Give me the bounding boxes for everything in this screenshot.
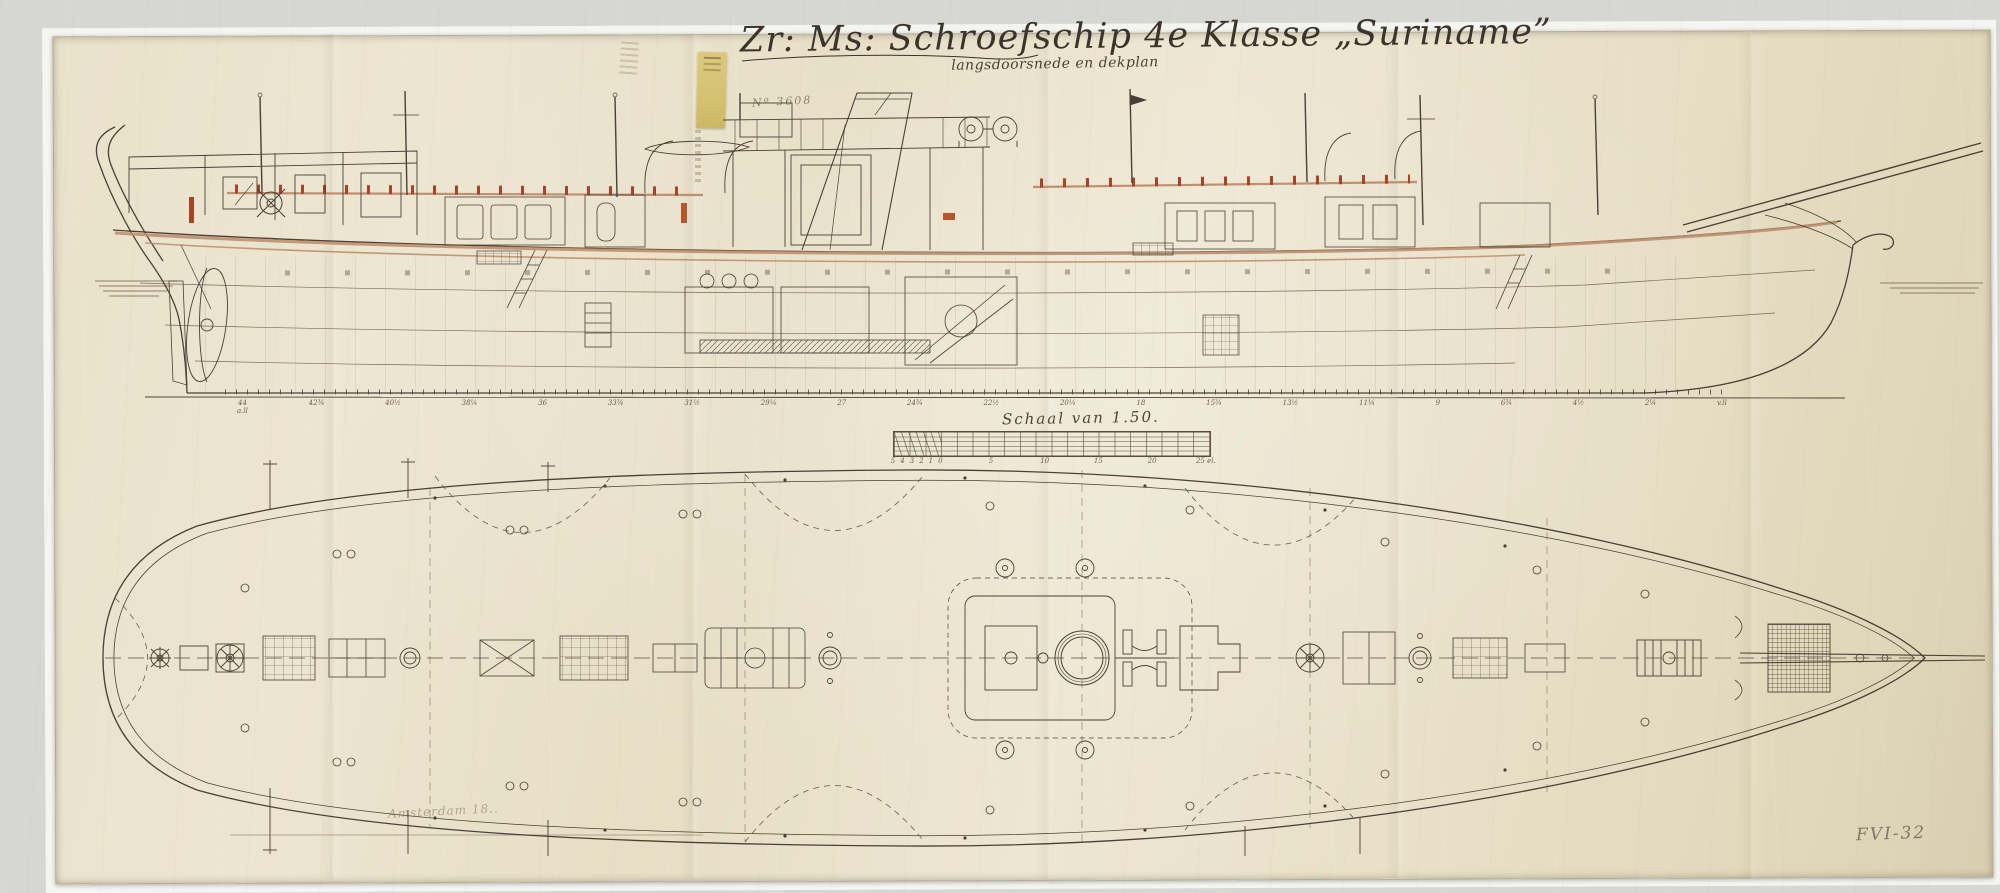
elevation-drawing <box>85 85 1990 410</box>
station-label: 27 <box>837 399 846 417</box>
aft-capstan <box>216 644 244 672</box>
bow-grating <box>1768 624 1830 692</box>
aft-skylights <box>263 636 697 680</box>
red-deck-fittings <box>189 179 1410 223</box>
fore-capstan <box>1296 644 1324 672</box>
station-label: 13½ <box>1283 399 1299 417</box>
station-label: 2¼ <box>1645 399 1656 417</box>
station-label: 15¾ <box>1206 399 1222 417</box>
davit-poles <box>263 458 1360 856</box>
mast-details <box>258 93 1597 119</box>
station-label: 31½ <box>684 399 700 417</box>
station-labels-row: 44 a.ll42¾40½38¼3633¾31½29¼2724¾22½20¼18… <box>237 399 1727 417</box>
station-label: 4½ <box>1573 399 1584 417</box>
plan-winch <box>1115 630 1175 686</box>
station-label: 11¼ <box>1359 399 1375 417</box>
station-label: 9 <box>1436 399 1440 417</box>
funnel <box>802 93 912 250</box>
station-label: 6¾ <box>1501 399 1512 417</box>
scanned-ship-plan: { "document": { "title": "Zr: Ms: Schroe… <box>0 0 2000 893</box>
pencil-scribble <box>619 41 639 76</box>
bridge-structure <box>723 103 990 250</box>
midship-casing <box>948 559 1192 759</box>
station-label: 38¼ <box>462 399 478 417</box>
station-label: 42¾ <box>309 399 325 417</box>
station-label: 44 a.ll <box>237 399 248 417</box>
station-label: 33¾ <box>608 399 624 417</box>
station-label: 22½ <box>983 399 999 417</box>
scale-bar <box>893 431 1211 457</box>
title-block: Zr: Ms: Schroefschip 4e Klasse „Suriname… <box>740 18 1220 72</box>
waterline-bow <box>1880 283 1983 293</box>
station-label: 24¾ <box>907 399 923 417</box>
engine-skylight <box>705 628 805 688</box>
waist-cabins <box>445 195 1550 249</box>
station-label: 29¼ <box>761 399 777 417</box>
scale-caption: Schaal van 1.50. <box>1002 408 1160 429</box>
station-label: 40½ <box>385 399 401 417</box>
inventory-mark: FVI-32 <box>1856 823 1927 845</box>
station-label: 36 <box>538 399 547 417</box>
bridge-winch <box>959 117 1017 147</box>
deckplan-drawing <box>85 458 1995 858</box>
station-label: v.ll <box>1717 399 1727 417</box>
